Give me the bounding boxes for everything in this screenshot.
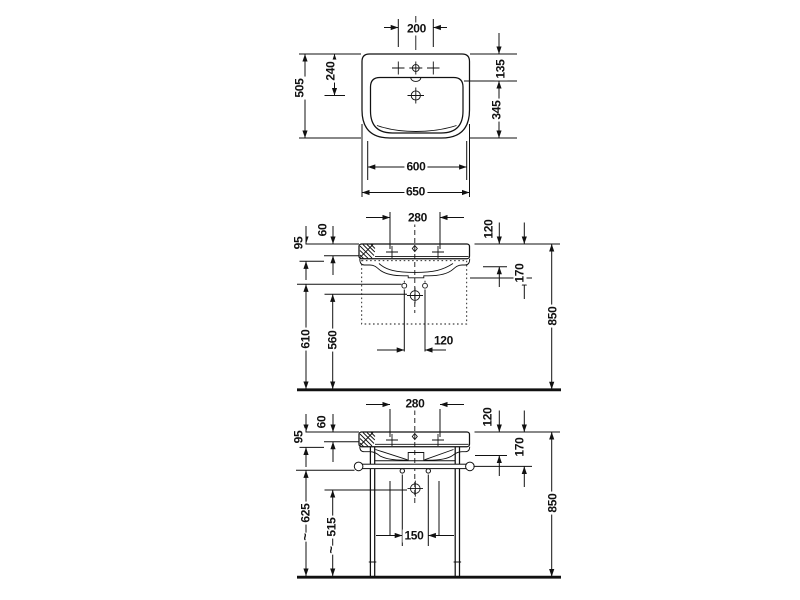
dim-label-rail-height: 625 (299, 501, 312, 524)
washbasin-dimension-drawing: 200 505 240 135 345 600 650 280 60 95 61… (0, 0, 800, 600)
dim-label-tap-spacing-wall: 280 (406, 212, 429, 225)
dim-label-drain-height-console: 515 (325, 515, 338, 538)
dim-label-rim-thickness-wall: 95 (292, 235, 305, 252)
approx-tilde: ~ (298, 532, 311, 541)
technical-drawing-canvas (0, 0, 800, 600)
wall-mounted-view (297, 212, 561, 390)
approx-tilde: ~ (325, 545, 338, 554)
dim-label-rim-height-console: 850 (546, 491, 559, 514)
dim-label-bolt-spacing: 150 (402, 529, 425, 542)
plan-drain-symbol (408, 88, 425, 104)
wall-dimension-lines (297, 212, 560, 389)
dim-label-apron-drop-wall: 170 (513, 261, 526, 284)
rail-end-cap (466, 462, 475, 471)
dim-label-rim-step-console: 60 (316, 414, 329, 431)
dim-label-overall-depth: 505 (294, 76, 307, 99)
towel-rail (354, 462, 474, 473)
section-hatch (360, 245, 376, 259)
rail-fixing-knob (400, 469, 404, 473)
dim-label-front-to-drain: 240 (325, 59, 338, 82)
dim-label-front-drop-wall: 120 (482, 217, 495, 240)
dim-label-basin-width: 600 (404, 160, 427, 173)
dim-label-fixing-height: 610 (299, 327, 312, 350)
wall-fixing-and-drain (362, 261, 467, 324)
rail-fixing-knob (426, 469, 430, 473)
dim-label-bowl-depth: 345 (490, 98, 503, 121)
dim-label-tap-spacing-console: 280 (403, 398, 426, 411)
plan-tap-holes (392, 62, 440, 75)
dim-label-front-drop-console: 120 (482, 405, 495, 428)
dim-label-rim-step-wall: 60 (317, 221, 330, 238)
dim-label-fixing-spacing: 120 (432, 334, 455, 347)
overflow-mark (411, 78, 421, 82)
section-hatch (360, 433, 376, 447)
hidden-outline (362, 261, 467, 324)
rail-end-cap (354, 462, 363, 471)
dim-label-drain-height-wall: 560 (326, 328, 339, 351)
dim-label-apron-drop-console: 170 (513, 435, 526, 458)
dim-label-overall-width: 650 (404, 186, 427, 199)
dim-label-rim-thickness-console: 95 (292, 429, 305, 446)
dim-label-rim-height-wall: 850 (546, 304, 559, 327)
dim-label-rear-ledge: 135 (495, 57, 508, 80)
dim-label-tap-spacing-plan: 200 (405, 22, 428, 35)
console-drain-symbol (408, 481, 424, 497)
